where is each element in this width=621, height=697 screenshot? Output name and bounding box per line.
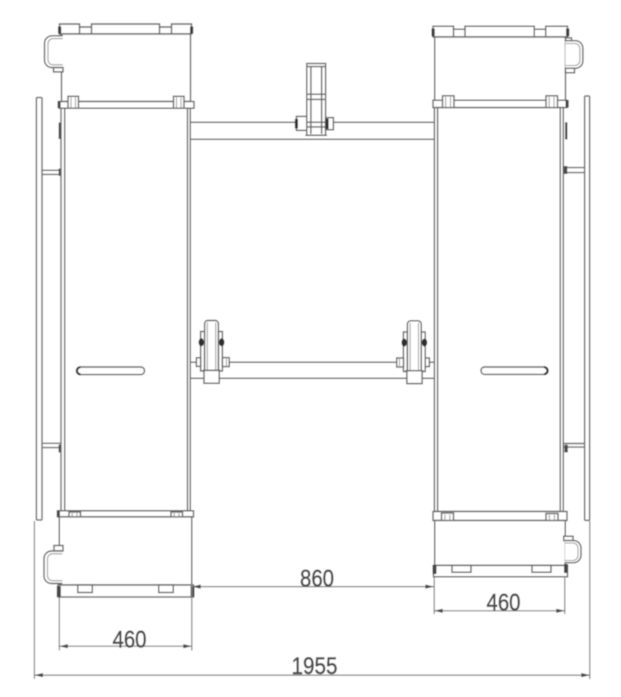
svg-text:460: 460 [113, 626, 147, 653]
svg-text:460: 460 [487, 589, 521, 616]
svg-text:860: 860 [300, 566, 334, 593]
svg-text:1955: 1955 [292, 653, 338, 680]
